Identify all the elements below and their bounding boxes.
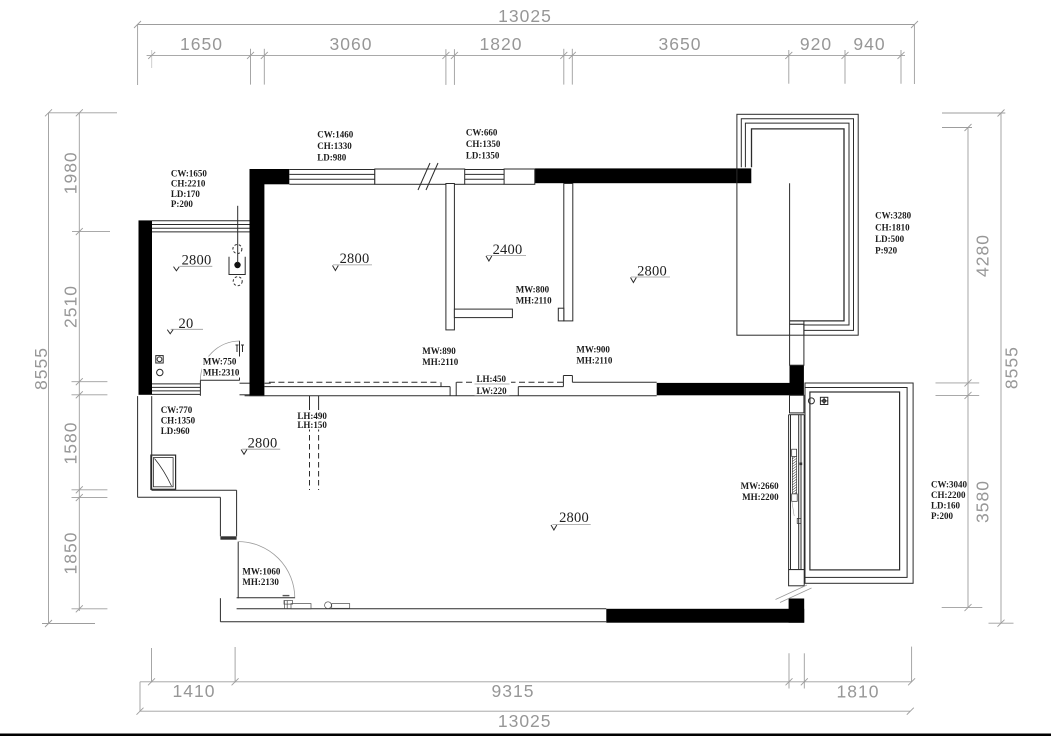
svg-text:P:200: P:200: [171, 199, 193, 209]
svg-text:CW:1650: CW:1650: [171, 169, 208, 179]
svg-text:2510: 2510: [61, 285, 81, 328]
svg-text:P:920: P:920: [875, 245, 897, 255]
svg-text:P:200: P:200: [931, 511, 953, 521]
svg-text:3650: 3650: [659, 34, 702, 54]
svg-text:1810: 1810: [837, 682, 880, 702]
svg-text:MH:2130: MH:2130: [242, 577, 279, 587]
svg-text:2800: 2800: [559, 510, 589, 526]
svg-text:MW:900: MW:900: [576, 344, 610, 354]
svg-text:1580: 1580: [61, 422, 81, 465]
svg-text:LD:960: LD:960: [161, 426, 190, 436]
svg-text:MH:2110: MH:2110: [576, 355, 612, 365]
svg-text:13025: 13025: [498, 6, 552, 26]
svg-text:1820: 1820: [480, 34, 523, 54]
svg-text:MH:2200: MH:2200: [742, 492, 779, 502]
svg-text:CH:1330: CH:1330: [317, 141, 352, 151]
svg-text:LD:170: LD:170: [171, 189, 200, 199]
svg-text:4280: 4280: [973, 234, 993, 277]
svg-text:MW:800: MW:800: [516, 285, 550, 295]
svg-text:9315: 9315: [492, 681, 535, 701]
svg-text:940: 940: [853, 34, 885, 54]
svg-text:MH:2110: MH:2110: [516, 296, 552, 306]
svg-text:1410: 1410: [173, 681, 216, 701]
svg-text:1650: 1650: [180, 34, 223, 54]
svg-text:3580: 3580: [973, 480, 993, 523]
svg-text:920: 920: [800, 34, 832, 54]
svg-text:LH:150: LH:150: [297, 420, 327, 430]
svg-text:CH:1810: CH:1810: [875, 222, 910, 232]
svg-text:MH:2310: MH:2310: [203, 368, 240, 378]
svg-text:3060: 3060: [330, 34, 373, 54]
svg-text:MW:750: MW:750: [203, 357, 237, 367]
svg-text:LH:450: LH:450: [477, 374, 507, 384]
svg-text:1850: 1850: [61, 532, 81, 575]
svg-text:CH:1350: CH:1350: [161, 416, 196, 426]
svg-text:MW:890: MW:890: [422, 346, 456, 356]
svg-text:CW:660: CW:660: [466, 127, 498, 137]
svg-text:CW:1460: CW:1460: [317, 130, 354, 140]
svg-text:CW:770: CW:770: [161, 405, 193, 415]
svg-text:CW:3280: CW:3280: [875, 211, 912, 221]
svg-text:CH:1350: CH:1350: [466, 139, 501, 149]
svg-text:8555: 8555: [1002, 346, 1022, 389]
svg-text:LD:160: LD:160: [931, 500, 960, 510]
svg-text:CW:3040: CW:3040: [931, 480, 968, 490]
svg-text:MH:2110: MH:2110: [422, 357, 458, 367]
svg-text:CH:2200: CH:2200: [931, 490, 966, 500]
svg-text:1980: 1980: [61, 151, 81, 194]
svg-text:LD:980: LD:980: [317, 152, 346, 162]
svg-text:CH:2210: CH:2210: [171, 179, 206, 189]
svg-text:8555: 8555: [31, 347, 51, 390]
svg-text:LD:500: LD:500: [875, 234, 904, 244]
svg-text:LW:220: LW:220: [477, 386, 508, 396]
svg-text:MW:1060: MW:1060: [242, 567, 280, 577]
svg-text:MW:2660: MW:2660: [741, 481, 779, 491]
svg-text:13025: 13025: [498, 711, 552, 731]
svg-text:LD:1350: LD:1350: [466, 151, 500, 161]
